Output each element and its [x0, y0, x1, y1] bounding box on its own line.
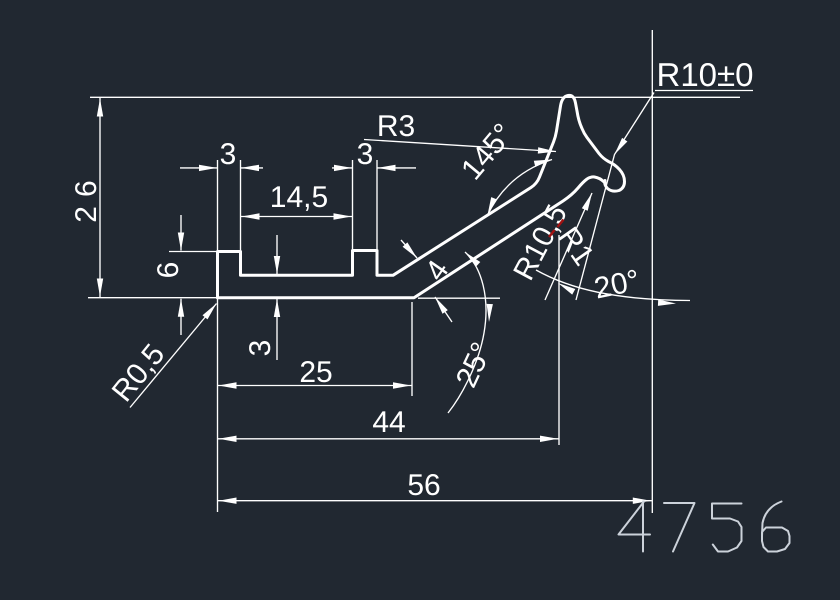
svg-text:3: 3: [244, 340, 277, 357]
svg-text:14,5: 14,5: [270, 181, 328, 214]
svg-text:6: 6: [152, 262, 185, 279]
svg-text:R10±0: R10±0: [656, 56, 753, 93]
svg-text:56: 56: [407, 469, 440, 502]
svg-text:3: 3: [220, 138, 237, 171]
svg-text:3: 3: [357, 138, 374, 171]
svg-text:R3: R3: [377, 110, 415, 143]
svg-text:44: 44: [372, 406, 405, 439]
svg-text:25: 25: [299, 356, 332, 389]
svg-text:26: 26: [70, 171, 103, 222]
